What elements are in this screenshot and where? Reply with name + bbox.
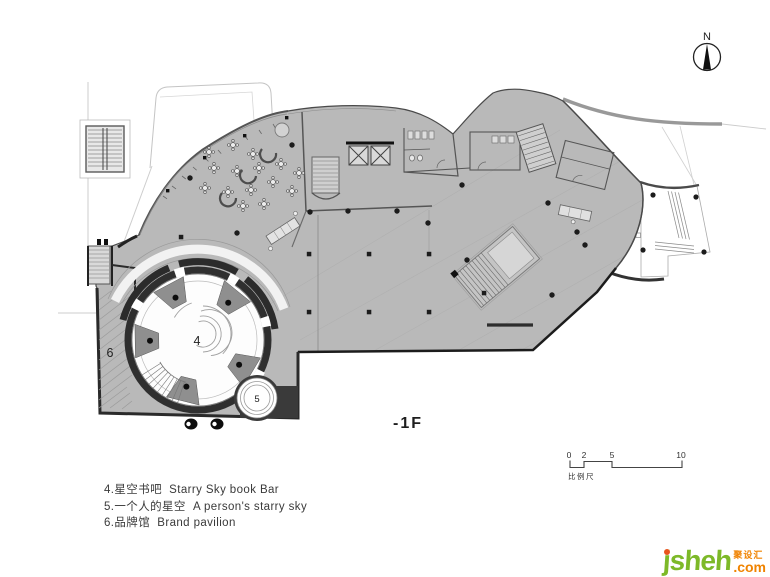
legend-item: 4.星空书吧 Starry Sky book Bar <box>104 482 307 499</box>
north-label: N <box>703 31 711 43</box>
legend-item: 6.品牌馆 Brand pavilion <box>104 515 307 532</box>
scale-tick: 10 <box>676 450 686 460</box>
watermark-wordmark: jsheh <box>662 548 732 574</box>
scale-tick: 0 <box>567 450 572 460</box>
bottom-stools <box>185 419 224 430</box>
floor-plan-page: 4 5 6 N 0 2 5 10 比例尺 4.星空书吧 Starry Sky b… <box>0 0 770 577</box>
legend: 4.星空书吧 Starry Sky book Bar 5.一个人的星空 A pe… <box>104 482 307 532</box>
legend-item: 5.一个人的星空 A person's starry sky <box>104 499 307 516</box>
scale-label: 比例尺 <box>568 471 595 481</box>
room-label-4: 4 <box>194 334 201 348</box>
scale-bar: 0 2 5 10 比例尺 <box>567 450 686 481</box>
skylight-circle <box>275 123 289 137</box>
scale-tick: 5 <box>610 450 615 460</box>
stair-lobby <box>312 157 340 199</box>
watermark-logo: jsheh 聚设汇 .com <box>663 548 766 574</box>
room-label-6: 6 <box>107 346 114 360</box>
watermark-tld: .com <box>733 560 766 574</box>
room-label-5: 5 <box>254 394 259 405</box>
scale-tick: 2 <box>582 450 587 460</box>
external-stair <box>80 120 130 178</box>
floor-label: -1F <box>378 415 438 433</box>
north-arrow: N <box>694 31 721 71</box>
site-road-line <box>563 99 722 124</box>
